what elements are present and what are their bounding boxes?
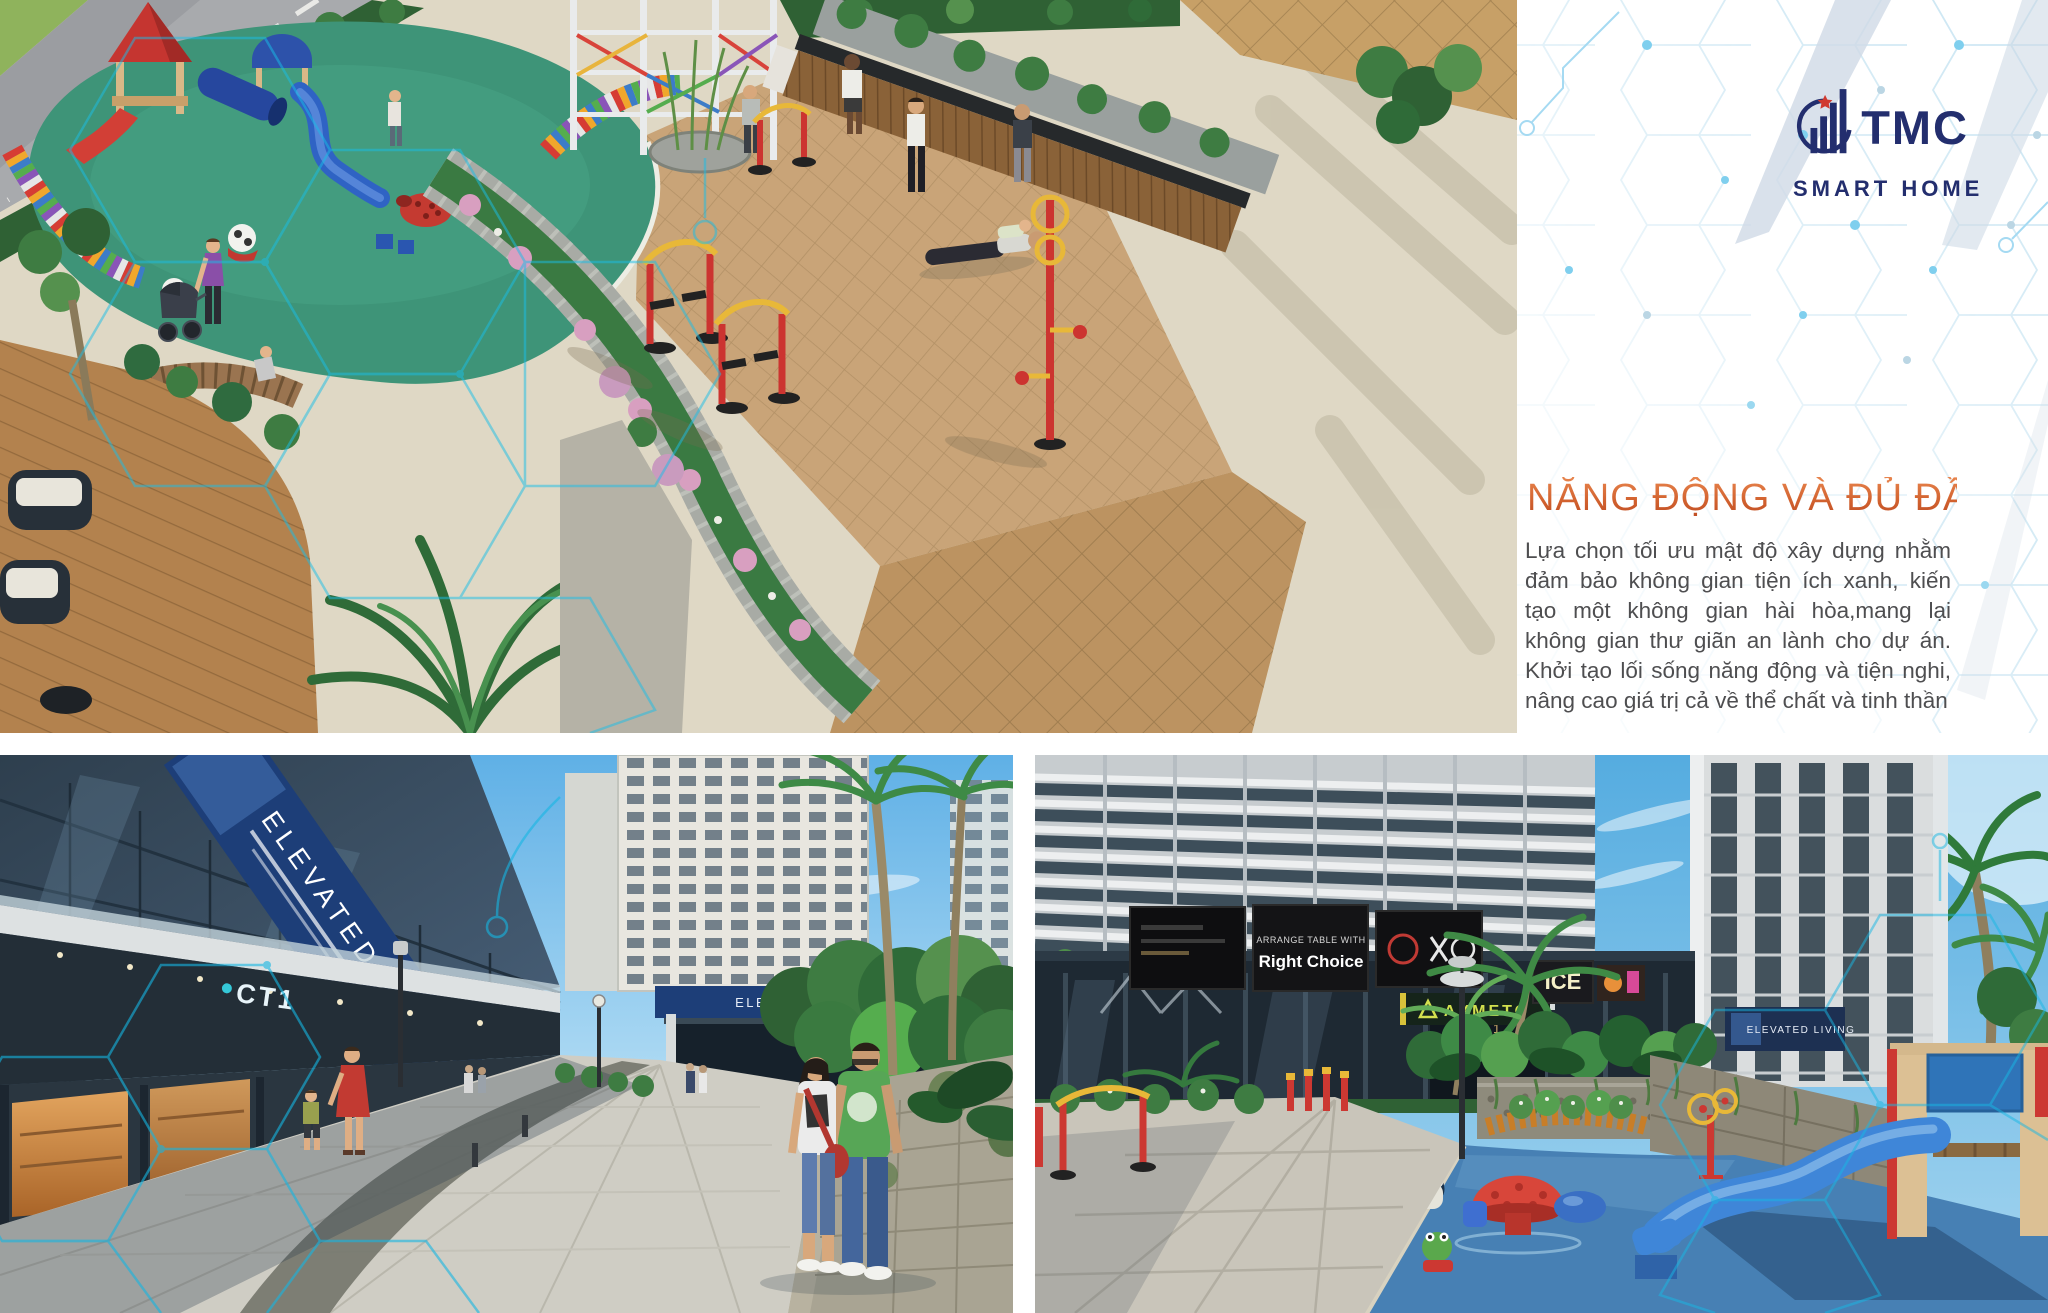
tmc-logo: TMC SMART HOME <box>1793 84 1969 202</box>
info-panel: TMC SMART HOME NĂNG ĐỘNG VÀ ĐỦ ĐẦY Lựa c… <box>1517 0 2048 733</box>
kids-playground-scene: CT1 ARRANGE TABLE WITH Right Choice <box>1035 755 2048 1313</box>
brand-name: TMC <box>1861 104 1969 151</box>
tmc-logo-icon <box>1793 84 1855 170</box>
right-choice-board: ARRANGE TABLE WITH Right Choice <box>1253 905 1368 991</box>
section-body: Lựa chọn tối ưu mật độ xây dựng nhằm đảm… <box>1525 536 1951 716</box>
playground-aerial-scene <box>0 0 1517 733</box>
frog-toy <box>1422 1232 1453 1272</box>
street-walkway-scene: ELEVATED LIVING CT1 <box>0 755 1013 1313</box>
svg-text:ARRANGE TABLE WITH: ARRANGE TABLE WITH <box>1256 935 1365 945</box>
render-street-walkway: ELEVATED LIVING CT1 <box>0 755 1013 1313</box>
render-playground-aerial <box>0 0 1517 733</box>
render-kids-playground: CT1 ARRANGE TABLE WITH Right Choice <box>1035 755 2048 1313</box>
section-title: NĂNG ĐỘNG VÀ ĐỦ ĐẦY <box>1527 477 1957 520</box>
svg-text:Right Choice: Right Choice <box>1259 952 1364 971</box>
brand-tagline: SMART HOME <box>1793 176 1969 202</box>
brochure-page: TMC SMART HOME NĂNG ĐỘNG VÀ ĐỦ ĐẦY Lựa c… <box>0 0 2048 1313</box>
